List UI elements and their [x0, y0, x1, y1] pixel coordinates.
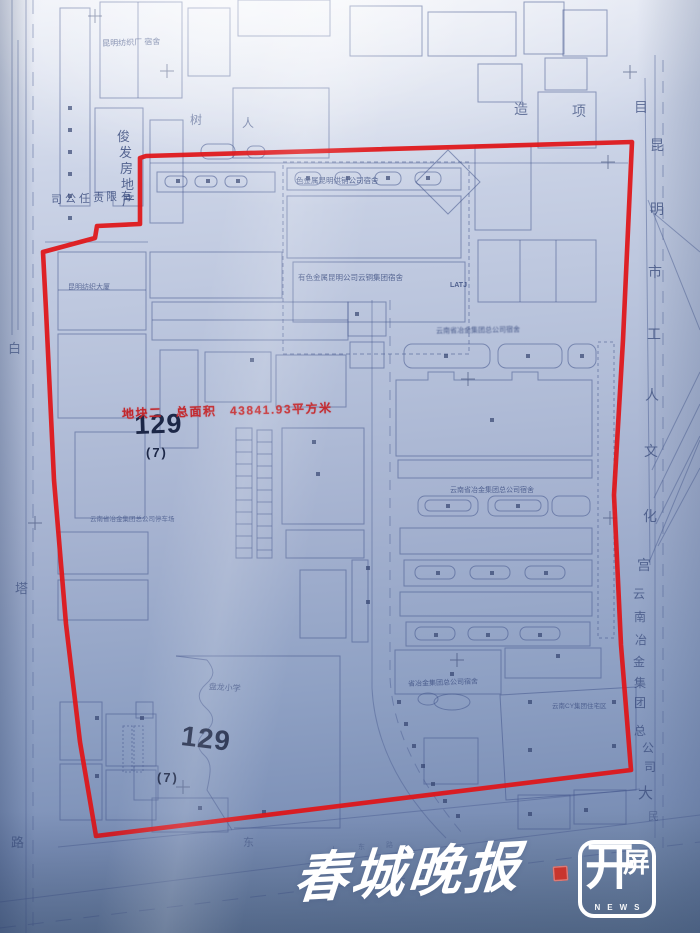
label-metallurgy-group-dorm-3: 省冶金集团总公司宿舍	[408, 679, 478, 688]
label-latj-mark: LATJ	[450, 282, 467, 289]
project-title-char: 目	[634, 100, 648, 114]
developer-company-suffix-char: 有	[121, 192, 132, 203]
label-panlong-primary-school: 盘龙小学	[208, 683, 240, 693]
parcel-number-2: 129	[180, 722, 233, 756]
street-name-renmin-east-road-char: 民	[648, 812, 659, 823]
right-margin-title-char: 团	[634, 697, 646, 709]
label-kunming-textile-factory-dorm: 昆明纺织厂 宿舍	[102, 38, 160, 48]
right-margin-title-char: 宫	[637, 558, 651, 572]
label-metallurgy-group-dorm-1: 云南省冶金集团总公司宿舍	[436, 327, 520, 335]
developer-name-char: 地	[121, 178, 134, 191]
right-margin-title-char: 金	[633, 656, 645, 668]
label-metallurgy-group-parking: 云南省冶金集团总公司停车场	[90, 517, 175, 524]
street-name-renmin-east-road-char: 东	[358, 844, 365, 851]
developer-name-char: 发	[119, 146, 132, 159]
developer-company-suffix-char: 司	[51, 195, 62, 206]
right-margin-title-char: 明	[650, 202, 664, 216]
right-margin-title-char: 文	[644, 444, 658, 458]
street-name-renmin-east-road-char: 人	[330, 847, 337, 854]
developer-company-suffix-char: 责	[93, 193, 104, 204]
project-title-char: 造	[514, 102, 528, 116]
street-name-baita-road-char: 塔	[15, 582, 28, 595]
developer-company-suffix-char: 任	[79, 194, 90, 205]
label-ren: 人	[242, 117, 254, 129]
parcel-sub-number-1: (7)	[146, 446, 168, 459]
developer-name-char: 俊	[117, 130, 130, 143]
street-name-renmin-east-road-char: 路	[386, 842, 393, 849]
right-margin-title-char: 工	[647, 327, 661, 341]
developer-name-char: 房	[120, 162, 133, 175]
right-margin-title-char: 大	[638, 786, 653, 801]
street-name-renmin-east-road-char: 东	[243, 838, 254, 849]
right-margin-title-char: 南	[634, 611, 646, 623]
right-margin-title-char: 集	[634, 677, 646, 689]
right-margin-title-char: 公	[642, 742, 654, 754]
label-yuntong-group-dorm: 有色金属昆明公司云铜集团宿舍	[298, 274, 403, 282]
developer-company-suffix-char: 限	[106, 192, 117, 203]
label-shu: 树	[190, 114, 202, 126]
parcel-sub-number-2: (7)	[157, 771, 179, 784]
right-margin-title-char: 司	[644, 761, 656, 773]
right-margin-title-char: 总	[634, 725, 646, 737]
project-title-char: 项	[572, 104, 586, 118]
photo-of-planning-map: 白塔路东人东路民造项目昆明市工人文化宫云南冶金集团总公司大俊发房地产司公任责限有…	[0, 0, 700, 933]
label-cy-group-residential: 云南CY集团住宅区	[552, 704, 607, 711]
label-kunming-textile-tower: 昆明纺织大厦	[68, 284, 110, 291]
right-margin-title-char: 市	[648, 265, 662, 279]
right-margin-title-char: 人	[645, 388, 659, 402]
label-nonferrous-supply-company-dorm: 色金属昆明供销公司宿舍	[296, 177, 379, 185]
right-margin-title-char: 化	[643, 509, 657, 523]
right-margin-title-char: 云	[633, 588, 645, 600]
street-name-baita-road-char: 白	[8, 342, 21, 355]
label-metallurgy-group-dorm-2: 云南省冶金集团总公司宿舍	[450, 487, 534, 494]
right-margin-title-char: 昆	[650, 138, 664, 152]
street-name-baita-road-char: 路	[11, 836, 24, 849]
developer-company-suffix-char: 公	[65, 194, 76, 205]
map-text-layer: 白塔路东人东路民造项目昆明市工人文化宫云南冶金集团总公司大俊发房地产司公任责限有…	[0, 0, 700, 933]
right-margin-title-char: 冶	[635, 634, 647, 646]
